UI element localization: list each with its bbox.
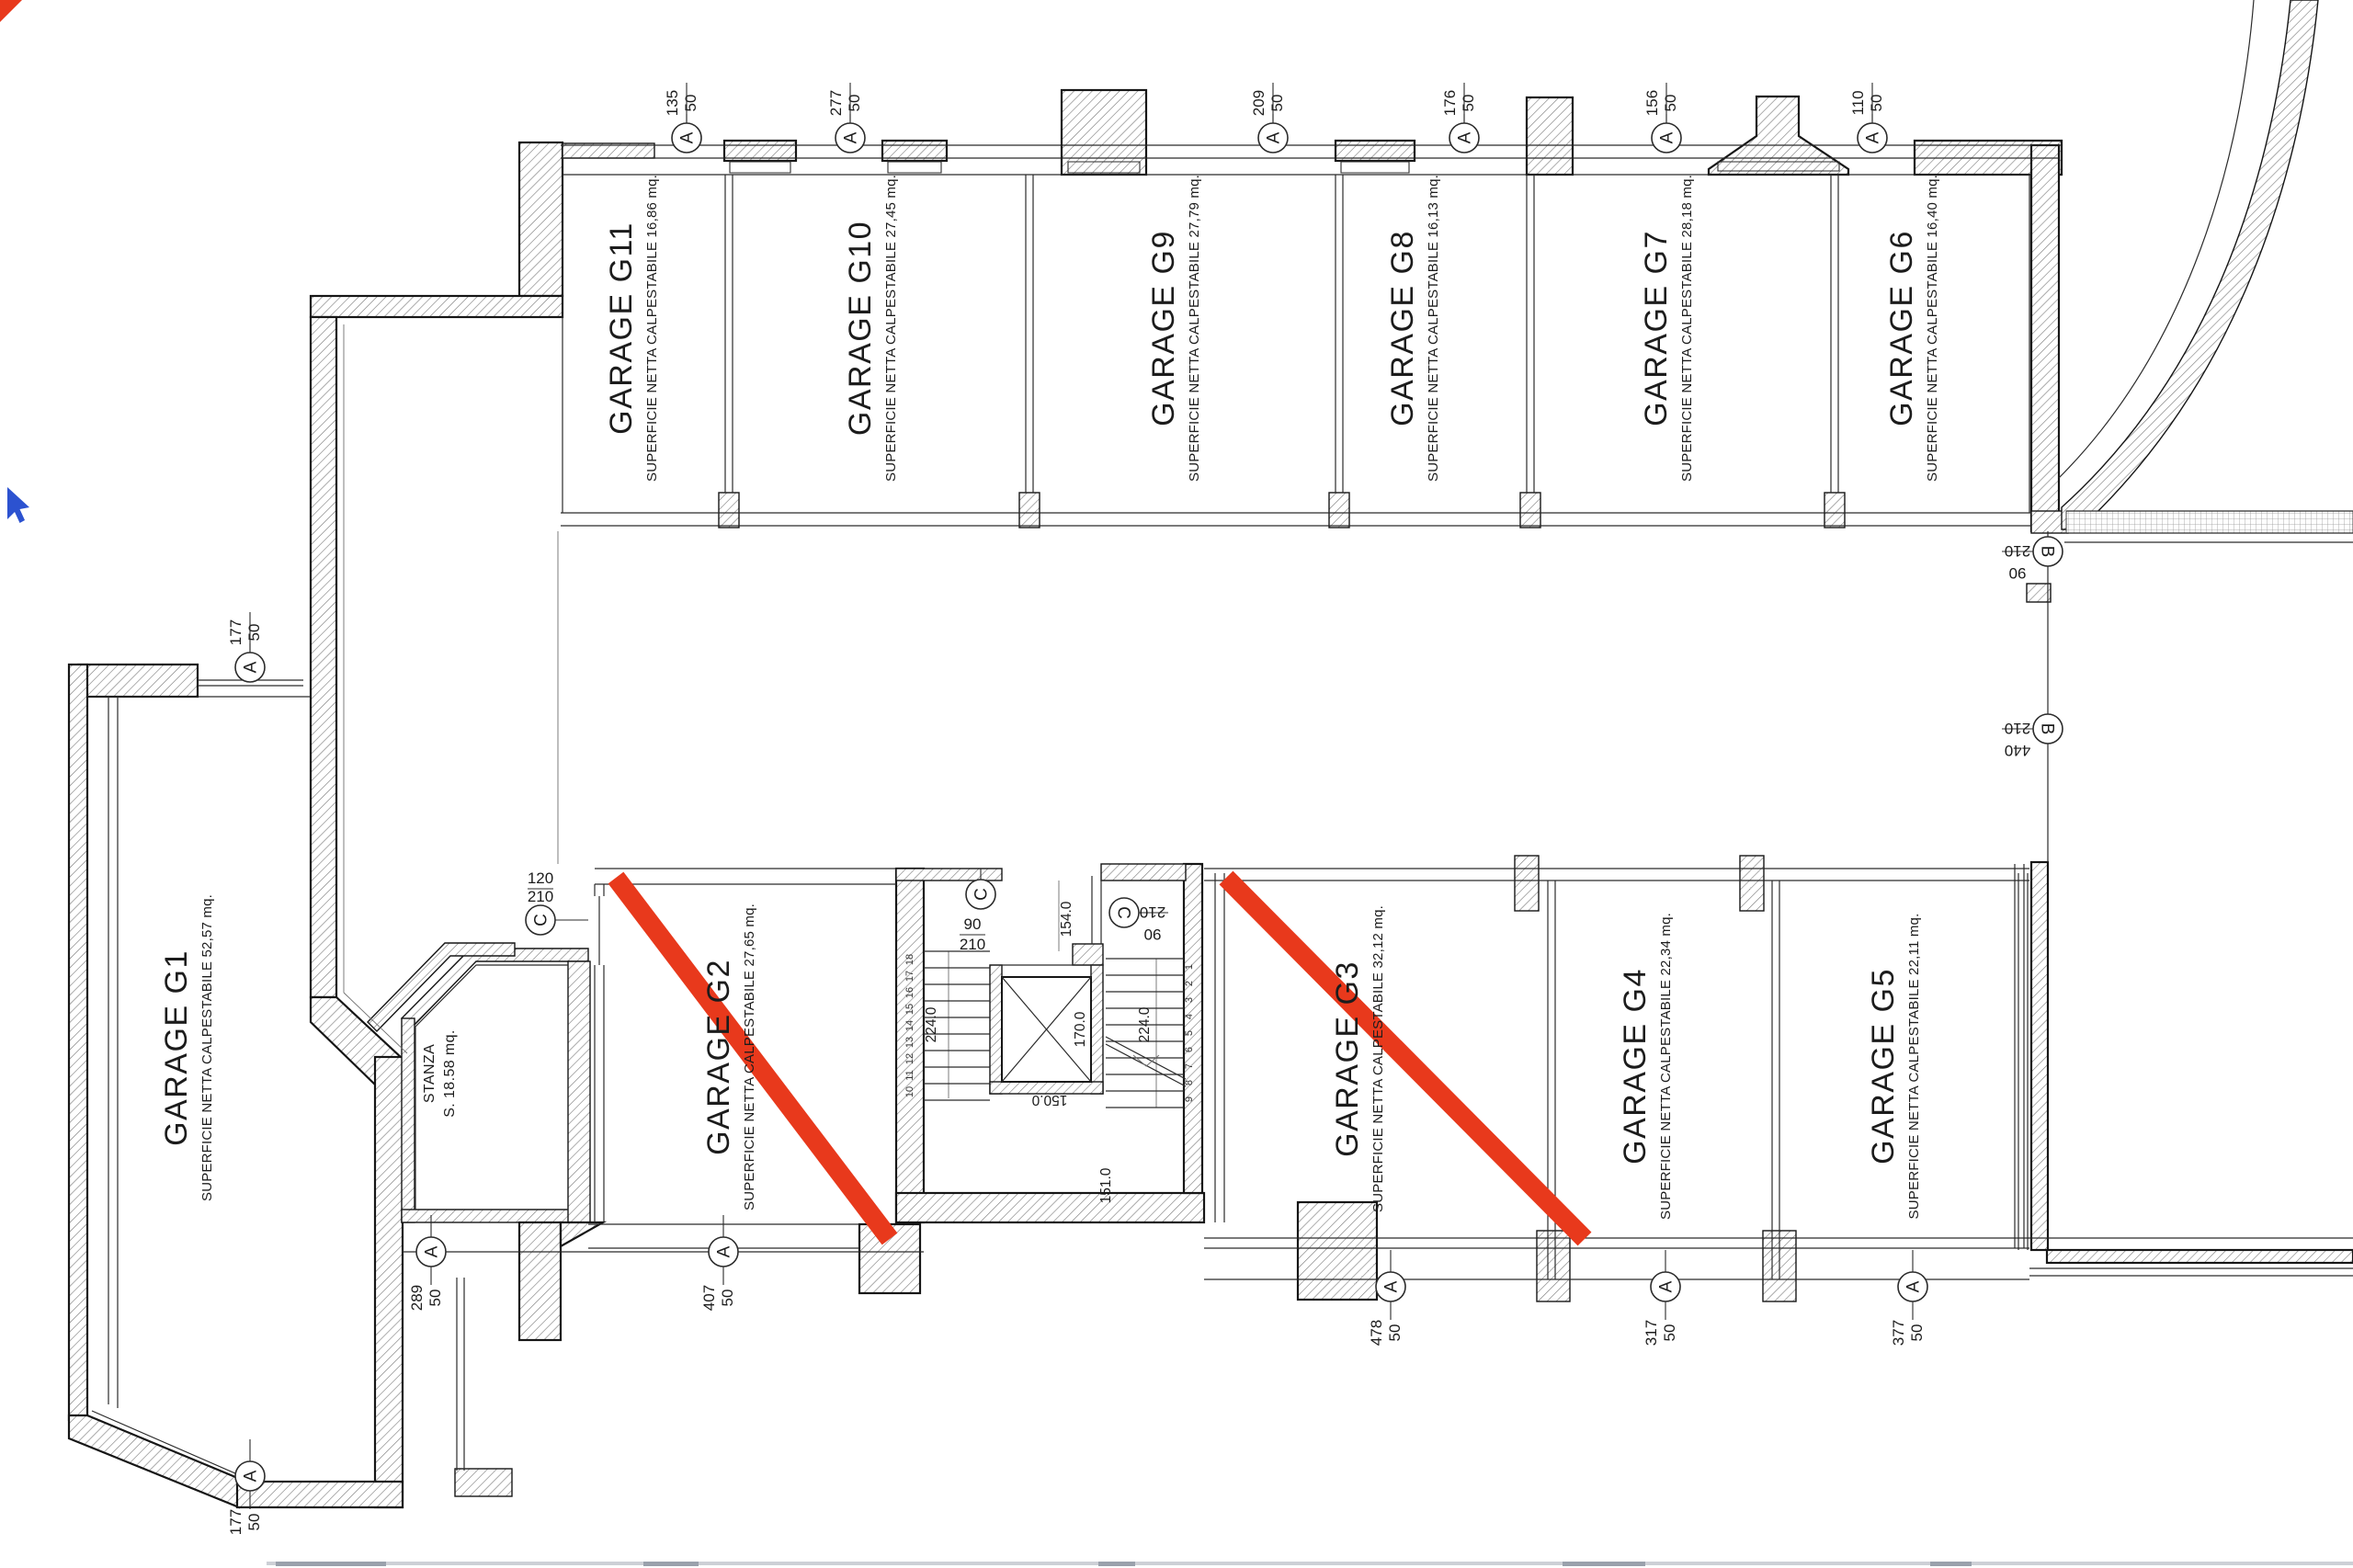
garage-label-g4: GARAGE G4 — [1618, 968, 1653, 1165]
garage-area-g5: SUPERFICIE NETTA CALPESTABILE 22,11 mq. — [1906, 914, 1922, 1220]
dim-value: 317 — [1643, 1320, 1660, 1346]
dim-value: 210 — [528, 888, 553, 905]
dim-value: 277 — [827, 90, 845, 116]
door-post — [1520, 493, 1540, 528]
stanza-wall-bottom — [402, 1210, 588, 1222]
garage-label-g5: GARAGE G5 — [1866, 968, 1901, 1165]
garage-label-g10: GARAGE G10 — [843, 221, 878, 436]
dimension-text: 154.0 — [1059, 901, 1074, 937]
dim-value: 478 — [1368, 1320, 1385, 1346]
dim-value: 50 — [719, 1290, 736, 1307]
stair-handrail — [1106, 1037, 1186, 1086]
elevator-wall — [990, 965, 1002, 1094]
wall-small-foot — [455, 1469, 512, 1496]
stair-number: 1 — [1184, 964, 1195, 970]
stair-number: 13 — [904, 1037, 915, 1048]
garage-label-g1: GARAGE G1 — [159, 949, 194, 1146]
garage-area-g4: SUPERFICIE NETTA CALPESTABILE 22,34 mq. — [1658, 913, 1674, 1220]
dim-value: 50 — [1661, 1324, 1678, 1342]
wall-step-band — [311, 296, 563, 317]
garage-label-g3: GARAGE G3 — [1330, 960, 1365, 1157]
axis-marker-letter-A: A — [242, 661, 261, 673]
dim-value: 50 — [1908, 1324, 1926, 1342]
stanza-wall-left — [402, 1018, 415, 1222]
dim-value: 210 — [1140, 903, 1165, 921]
garage-area-g11: SUPERFICIE NETTA CALPESTABILE 16,86 mq. — [644, 175, 660, 482]
door-post — [719, 493, 739, 528]
stair-number: 18 — [904, 954, 915, 965]
garage-floor-plan: GARAGE G11SUPERFICIE NETTA CALPESTABILE … — [0, 0, 2353, 1568]
stair-core-right-wall — [1184, 864, 1202, 1193]
stair-number: 12 — [904, 1053, 915, 1064]
wall-right-upper — [2031, 145, 2059, 531]
door-jamb — [1073, 944, 1103, 965]
dimension-text: 150.0 — [1031, 1092, 1067, 1108]
pilaster-tall — [1527, 97, 1573, 175]
garage-area-g1: SUPERFICIE NETTA CALPESTABILE 52,57 mq. — [199, 894, 215, 1201]
stair-number: 10 — [904, 1086, 915, 1097]
garage-area-g3: SUPERFICIE NETTA CALPESTABILE 32,12 mq. — [1370, 905, 1386, 1212]
dimension-text: 151.0 — [1098, 1167, 1114, 1203]
stair-number: 7 — [1184, 1063, 1195, 1069]
column-right — [2027, 584, 2051, 602]
axis-marker-letter-A: A — [1657, 1280, 1677, 1292]
dim-value: 90 — [2009, 564, 2027, 582]
stair-number: 8 — [1184, 1080, 1195, 1085]
stair-number: 3 — [1184, 997, 1195, 1003]
axis-marker-letter-A: A — [715, 1245, 734, 1257]
dim-value: 210 — [960, 936, 985, 953]
garage-label-g6: GARAGE G6 — [1884, 230, 1919, 426]
dim-value: 90 — [1144, 926, 1162, 943]
stair-number: 2 — [1184, 981, 1195, 986]
wall-g1-right — [375, 1057, 403, 1507]
wall-bottom-right — [2047, 1250, 2353, 1263]
axis-marker-letter-A: A — [1904, 1280, 1924, 1292]
stair-number: 6 — [1184, 1047, 1195, 1052]
garage-area-g10: SUPERFICIE NETTA CALPESTABILE 27,45 mq. — [883, 175, 899, 482]
axis-marker-letter-A: A — [423, 1245, 442, 1257]
corner-mark — [0, 0, 22, 22]
dim-value: 156 — [1643, 90, 1661, 116]
bottom-edge-artifact — [267, 1562, 2353, 1566]
door-post — [1740, 856, 1764, 911]
dim-value: 177 — [227, 1509, 244, 1535]
sold-strike-g3 — [1226, 878, 1585, 1239]
dim-value: 110 — [1849, 90, 1867, 115]
stair-number: 9 — [1184, 1096, 1195, 1102]
axis-marker-letter-A: A — [1456, 131, 1475, 143]
door-post — [1515, 856, 1539, 911]
garage-area-g7: SUPERFICIE NETTA CALPESTABILE 28,18 mq. — [1679, 175, 1695, 482]
wall-g1-bottom-diagonal — [69, 1415, 246, 1507]
stair-number: 14 — [904, 1020, 915, 1031]
stair-core-bottom-wall — [896, 1193, 1204, 1222]
floor-plan-viewport: GARAGE G11SUPERFICIE NETTA CALPESTABILE … — [0, 0, 2353, 1568]
dimension-text: 224.0 — [1137, 1006, 1153, 1042]
wall-left-vertical — [311, 317, 336, 997]
axis-marker-letter-A: A — [1382, 1280, 1402, 1292]
axis-marker-letter-A: A — [1658, 131, 1677, 143]
wall-g1-top — [78, 665, 198, 697]
wall-right-lower — [2031, 862, 2048, 1250]
column — [1537, 1231, 1570, 1301]
dim-value: 50 — [1386, 1324, 1404, 1342]
garage-area-g9: SUPERFICIE NETTA CALPESTABILE 27,79 mq. — [1187, 175, 1202, 482]
dim-value: 289 — [408, 1285, 426, 1311]
pier-g3-bottom — [1298, 1202, 1377, 1300]
axis-marker-letter-C: C — [972, 888, 992, 901]
dimension-text: 170.0 — [1073, 1011, 1088, 1047]
stair-number: 17 — [904, 971, 915, 982]
wall-topleft-tower — [519, 142, 563, 296]
stair-number: 16 — [904, 987, 915, 998]
dim-value: 210 — [2005, 542, 2030, 560]
garage-area-g2: SUPERFICIE NETTA CALPESTABILE 27,65 mq. — [742, 903, 757, 1210]
dim-value: 135 — [664, 90, 681, 116]
door-post — [1329, 493, 1349, 528]
door-post — [1824, 493, 1845, 528]
garage-label-g9: GARAGE G9 — [1146, 230, 1181, 426]
dim-value: 176 — [1441, 90, 1459, 116]
wall-g1-left — [69, 665, 87, 1420]
axis-marker-letter-C: C — [532, 914, 551, 926]
pilaster-flared — [1709, 97, 1848, 175]
room-label-stanza: STANZA — [422, 1044, 438, 1103]
stair-number: 4 — [1184, 1014, 1195, 1019]
dim-value: 177 — [227, 619, 244, 645]
mouse-cursor-icon — [7, 487, 29, 523]
axis-marker-letter-A: A — [242, 1470, 261, 1482]
stair-number: 11 — [904, 1070, 915, 1080]
stair-number: 5 — [1184, 1030, 1195, 1036]
road-strip — [2066, 511, 2353, 533]
dim-value: 50 — [245, 1514, 263, 1531]
stair-core-top-wall — [896, 869, 1002, 881]
room-area-stanza: S. 18.58 mq. — [442, 1029, 458, 1118]
stair-core-top-wall — [1101, 864, 1186, 881]
garage-area-g6: SUPERFICIE NETTA CALPESTABILE 16,40 mq. — [1925, 175, 1940, 482]
dim-value: 120 — [528, 869, 553, 887]
dim-value: 50 — [1868, 95, 1885, 112]
dim-value: 50 — [682, 95, 699, 112]
door-post — [1019, 493, 1040, 528]
curved-road-band — [2062, 0, 2318, 529]
dim-value: 50 — [245, 624, 263, 642]
dim-value: 90 — [964, 915, 982, 933]
axis-marker-letter-A: A — [1265, 131, 1284, 143]
axis-marker-letter-A: A — [842, 131, 861, 143]
dim-value: 377 — [1890, 1320, 1907, 1346]
axis-marker-letter-B: B — [2038, 546, 2057, 558]
dim-value: 407 — [700, 1285, 718, 1311]
wall-foot-flare — [561, 1222, 603, 1246]
dim-value: 50 — [1460, 95, 1477, 112]
stanza-wall-right — [568, 961, 590, 1222]
stair-number: 15 — [904, 1004, 915, 1015]
dim-value: 440 — [2005, 742, 2030, 759]
dim-value: 50 — [1268, 95, 1286, 112]
dim-value: 210 — [2005, 720, 2030, 737]
elevator-wall — [1091, 965, 1103, 1094]
dim-value: 50 — [1662, 95, 1679, 112]
axis-marker-letter-B: B — [2038, 723, 2057, 735]
garage-area-g8: SUPERFICIE NETTA CALPESTABILE 16,13 mq. — [1426, 175, 1441, 482]
dim-value: 50 — [426, 1290, 444, 1307]
garage-label-g7: GARAGE G7 — [1639, 230, 1674, 426]
axis-marker-letter-A: A — [678, 131, 698, 143]
dim-value: 209 — [1250, 90, 1267, 116]
dimension-text: 224.0 — [924, 1006, 939, 1042]
garage-label-g11: GARAGE G11 — [604, 222, 639, 435]
garage-label-g2: GARAGE G2 — [701, 959, 736, 1155]
garage-label-g8: GARAGE G8 — [1385, 230, 1420, 426]
axis-marker-letter-C: C — [1114, 906, 1133, 919]
axis-marker-letter-A: A — [1864, 131, 1883, 143]
wall-foot-stem — [519, 1222, 561, 1340]
dim-value: 50 — [846, 95, 863, 112]
